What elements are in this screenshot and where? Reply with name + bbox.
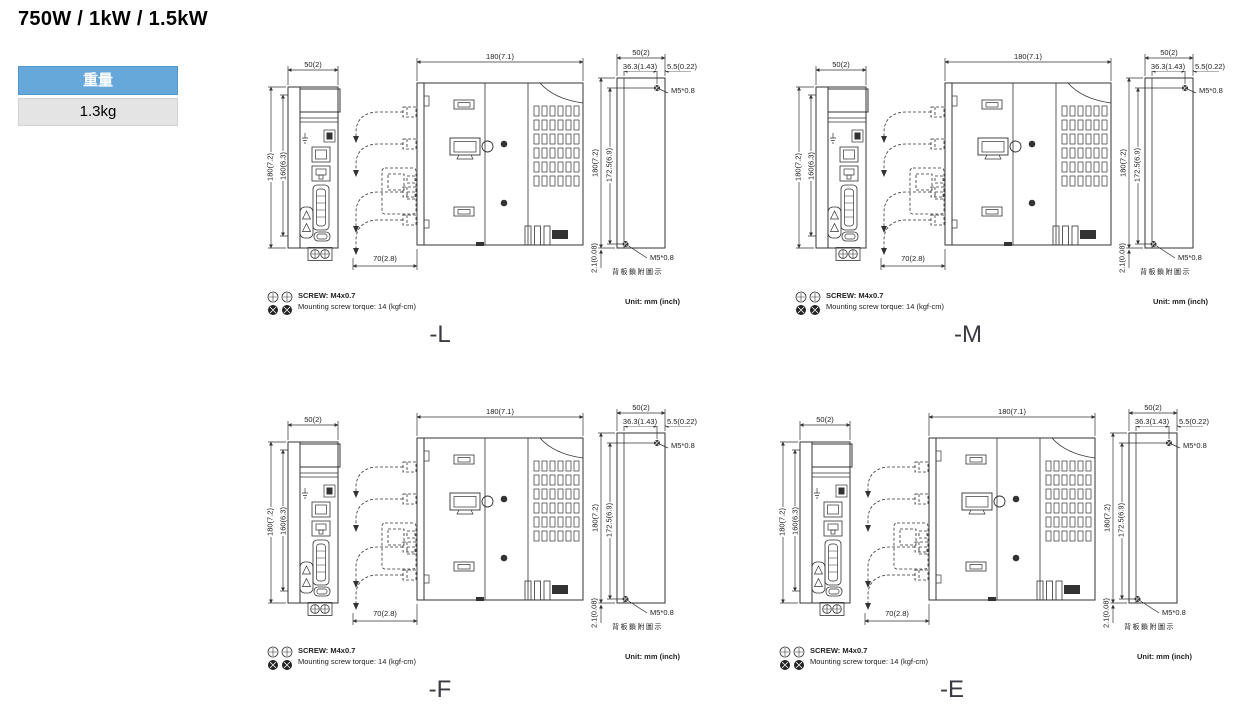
dim-rear-edge-offset: 5.5(0.22) xyxy=(1178,418,1210,426)
dim-front-height-inner: 160(6.3) xyxy=(791,506,799,536)
dim-front-width: 50(2) xyxy=(303,416,323,424)
variant-label: -F xyxy=(429,676,452,704)
variant-label: -E xyxy=(940,676,964,704)
note-unit: Unit: mm (inch) xyxy=(625,653,680,662)
dim-rear-edge-offset: 5.5(0.22) xyxy=(666,418,698,426)
dim-rear-screw-top: M5*0.8 xyxy=(1198,87,1224,95)
dim-side-width: 180(7.1) xyxy=(1013,53,1043,61)
dim-front-height-inner: 160(6.3) xyxy=(279,506,287,536)
drawing-quadrant-M: 50(2) 180(7.2) 160(6.3) 180(7.1) 70(2.8)… xyxy=(786,40,1242,360)
note-screw-torque: Mounting screw torque: 14 (kgf-cm) xyxy=(826,303,944,312)
dim-rear-bottom-offset: 2.1(0.08) xyxy=(1102,597,1110,629)
dim-front-height-outer: 180(7.2) xyxy=(266,152,274,182)
dim-rear-height-outer: 180(7.2) xyxy=(1103,503,1111,533)
dim-rear-width: 50(2) xyxy=(1159,49,1179,57)
dim-rear-screw-top: M5*0.8 xyxy=(670,442,696,450)
rear-mounting-caption: 背板鎖附圖示 xyxy=(1124,622,1175,632)
dim-rear-width: 50(2) xyxy=(631,404,651,412)
dim-rear-screw-top: M5*0.8 xyxy=(670,87,696,95)
dim-side-width: 180(7.1) xyxy=(485,53,515,61)
variant-label: -M xyxy=(954,321,982,349)
dim-front-height-outer: 180(7.2) xyxy=(778,507,786,537)
dim-rear-hole-height: 172.5(6.9) xyxy=(1117,502,1125,538)
dim-rear-hole-span: 36.3(1.43) xyxy=(622,418,658,426)
dim-front-width: 50(2) xyxy=(815,416,835,424)
drawing-quadrant-E: 50(2) 180(7.2) 160(6.3) 180(7.1) 70(2.8)… xyxy=(770,395,1230,715)
dim-front-height-inner: 160(6.3) xyxy=(279,151,287,181)
dim-rear-height-outer: 180(7.2) xyxy=(591,503,599,533)
note-screw-torque: Mounting screw torque: 14 (kgf-cm) xyxy=(810,658,928,667)
dim-rear-width: 50(2) xyxy=(631,49,651,57)
drawing-quadrant-L: 50(2) 180(7.2) 160(6.3) 180(7.1) 70(2.8)… xyxy=(258,40,718,360)
dim-rear-edge-offset: 5.5(0.22) xyxy=(1194,63,1226,71)
dim-side-width: 180(7.1) xyxy=(997,408,1027,416)
dim-rear-hole-height: 172.5(6.9) xyxy=(1133,147,1141,183)
dim-rear-screw-bottom: M5*0.8 xyxy=(1177,254,1203,262)
drive-line-art xyxy=(770,395,1230,715)
drive-line-art xyxy=(258,40,718,360)
dim-side-width: 180(7.1) xyxy=(485,408,515,416)
variant-label: -L xyxy=(429,321,450,349)
note-screw-torque: Mounting screw torque: 14 (kgf-cm) xyxy=(298,658,416,667)
dim-cable-clearance: 70(2.8) xyxy=(372,610,398,618)
dim-cable-clearance: 70(2.8) xyxy=(900,255,926,263)
dim-cable-clearance: 70(2.8) xyxy=(372,255,398,263)
rear-mounting-caption: 背板鎖附圖示 xyxy=(612,267,663,277)
dim-rear-hole-span: 36.3(1.43) xyxy=(622,63,658,71)
weight-table-value: 1.3kg xyxy=(18,98,178,126)
dim-rear-width: 50(2) xyxy=(1143,404,1163,412)
dim-rear-screw-top: M5*0.8 xyxy=(1182,442,1208,450)
note-unit: Unit: mm (inch) xyxy=(1153,298,1208,307)
note-unit: Unit: mm (inch) xyxy=(625,298,680,307)
dim-front-width: 50(2) xyxy=(831,61,851,69)
dim-rear-bottom-offset: 2.1(0.08) xyxy=(590,597,598,629)
dim-rear-screw-bottom: M5*0.8 xyxy=(1161,609,1187,617)
weight-table-header: 重量 xyxy=(18,66,178,95)
rear-mounting-caption: 背板鎖附圖示 xyxy=(612,622,663,632)
note-screw-spec: SCREW: M4x0.7 xyxy=(298,292,355,301)
dim-front-height-outer: 180(7.2) xyxy=(266,507,274,537)
note-screw-torque: Mounting screw torque: 14 (kgf-cm) xyxy=(298,303,416,312)
dim-rear-hole-height: 172.5(6.9) xyxy=(605,502,613,538)
manual-page: { "page": { "title": "750W / 1kW / 1.5kW… xyxy=(0,0,1242,726)
dim-front-height-outer: 180(7.2) xyxy=(794,152,802,182)
rear-mounting-caption: 背板鎖附圖示 xyxy=(1140,267,1191,277)
dim-rear-height-outer: 180(7.2) xyxy=(591,148,599,178)
dim-rear-height-outer: 180(7.2) xyxy=(1119,148,1127,178)
dim-rear-hole-height: 172.5(6.9) xyxy=(605,147,613,183)
weight-table: 重量 1.3kg xyxy=(18,66,178,126)
dim-rear-screw-bottom: M5*0.8 xyxy=(649,609,675,617)
drive-line-art xyxy=(258,395,718,715)
dim-front-height-inner: 160(6.3) xyxy=(807,151,815,181)
note-screw-spec: SCREW: M4x0.7 xyxy=(810,647,867,656)
note-screw-spec: SCREW: M4x0.7 xyxy=(298,647,355,656)
dim-rear-screw-bottom: M5*0.8 xyxy=(649,254,675,262)
dim-rear-bottom-offset: 2.1(0.08) xyxy=(590,242,598,274)
note-screw-spec: SCREW: M4x0.7 xyxy=(826,292,883,301)
drive-line-art xyxy=(786,40,1242,360)
dim-rear-hole-span: 36.3(1.43) xyxy=(1134,418,1170,426)
dim-rear-hole-span: 36.3(1.43) xyxy=(1150,63,1186,71)
dim-rear-edge-offset: 5.5(0.22) xyxy=(666,63,698,71)
drawing-quadrant-F: 50(2) 180(7.2) 160(6.3) 180(7.1) 70(2.8)… xyxy=(258,395,718,715)
dim-rear-bottom-offset: 2.1(0.08) xyxy=(1118,242,1126,274)
note-unit: Unit: mm (inch) xyxy=(1137,653,1192,662)
page-title: 750W / 1kW / 1.5kW xyxy=(18,8,208,31)
dim-cable-clearance: 70(2.8) xyxy=(884,610,910,618)
dim-front-width: 50(2) xyxy=(303,61,323,69)
